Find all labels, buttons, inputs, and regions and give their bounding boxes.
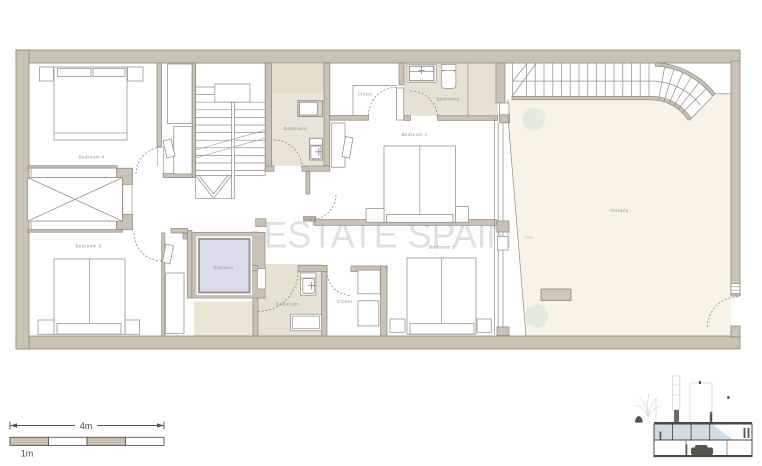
svg-text:Bedroom 4: Bedroom 4 xyxy=(78,155,104,160)
svg-text:Bedroom 1: Bedroom 1 xyxy=(401,132,427,137)
svg-text:Terraza: Terraza xyxy=(610,208,628,213)
svg-text:Closet: Closet xyxy=(337,299,353,304)
svg-text:1m: 1m xyxy=(21,449,34,459)
svg-text:Bedroom 2: Bedroom 2 xyxy=(429,245,455,250)
svg-text:Closet: Closet xyxy=(357,92,373,97)
svg-text:Bathroom: Bathroom xyxy=(276,302,299,307)
svg-text:Elevator: Elevator xyxy=(213,265,233,270)
svg-text:Bathroom: Bathroom xyxy=(436,97,459,102)
svg-text:4m: 4m xyxy=(80,421,93,431)
svg-text:Bathroom: Bathroom xyxy=(284,126,307,131)
svg-text:Bedroom 3: Bedroom 3 xyxy=(75,244,101,249)
